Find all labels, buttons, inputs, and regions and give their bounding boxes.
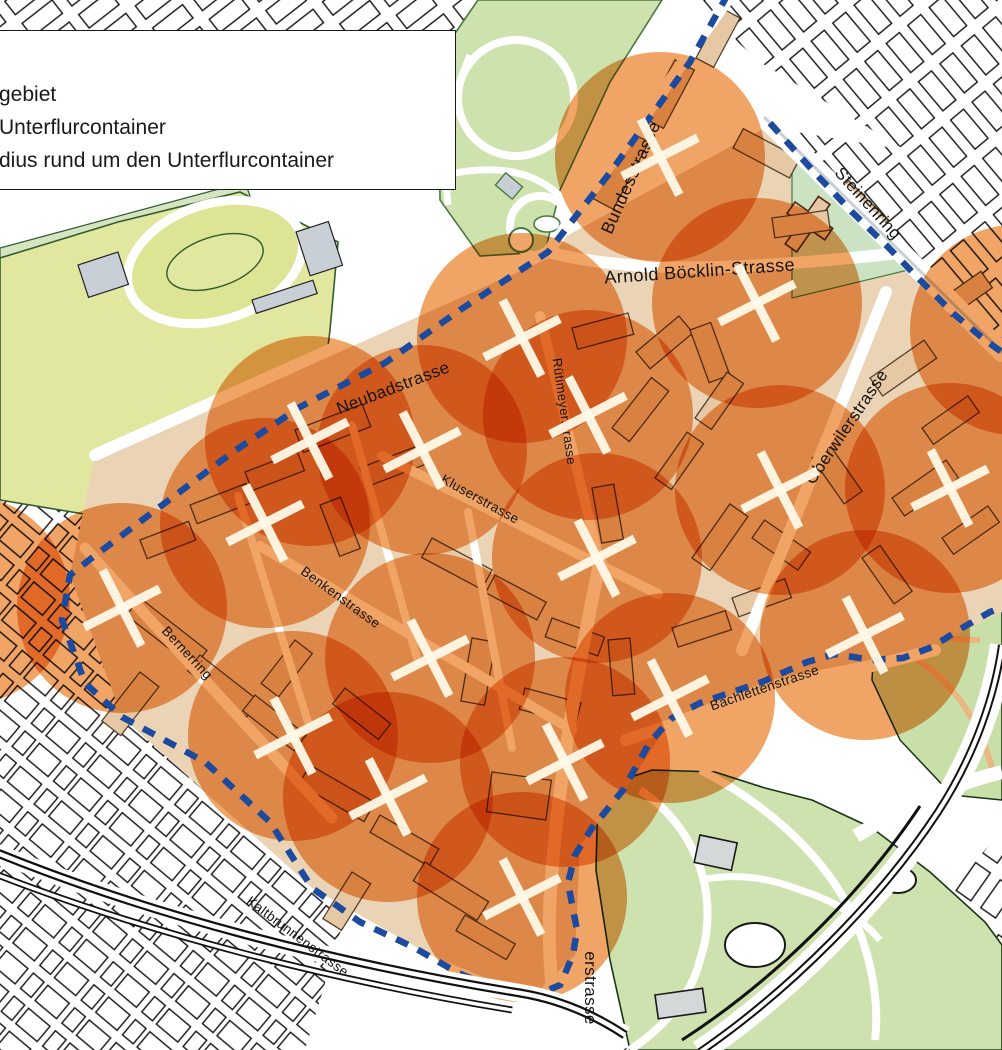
- legend-box: gebiet Unterflurcontainer dius rund um d…: [0, 30, 456, 190]
- legend-line-container: Unterflurcontainer: [0, 111, 455, 144]
- map-stage: BundesstrasseArnold Böcklin-StrasseStein…: [0, 0, 1002, 1050]
- legend-line-area: gebiet: [0, 78, 455, 111]
- street-label-erstrasse: erstrasse: [581, 951, 600, 1025]
- legend-line-radius: dius rund um den Unterflurcontainer: [0, 144, 455, 177]
